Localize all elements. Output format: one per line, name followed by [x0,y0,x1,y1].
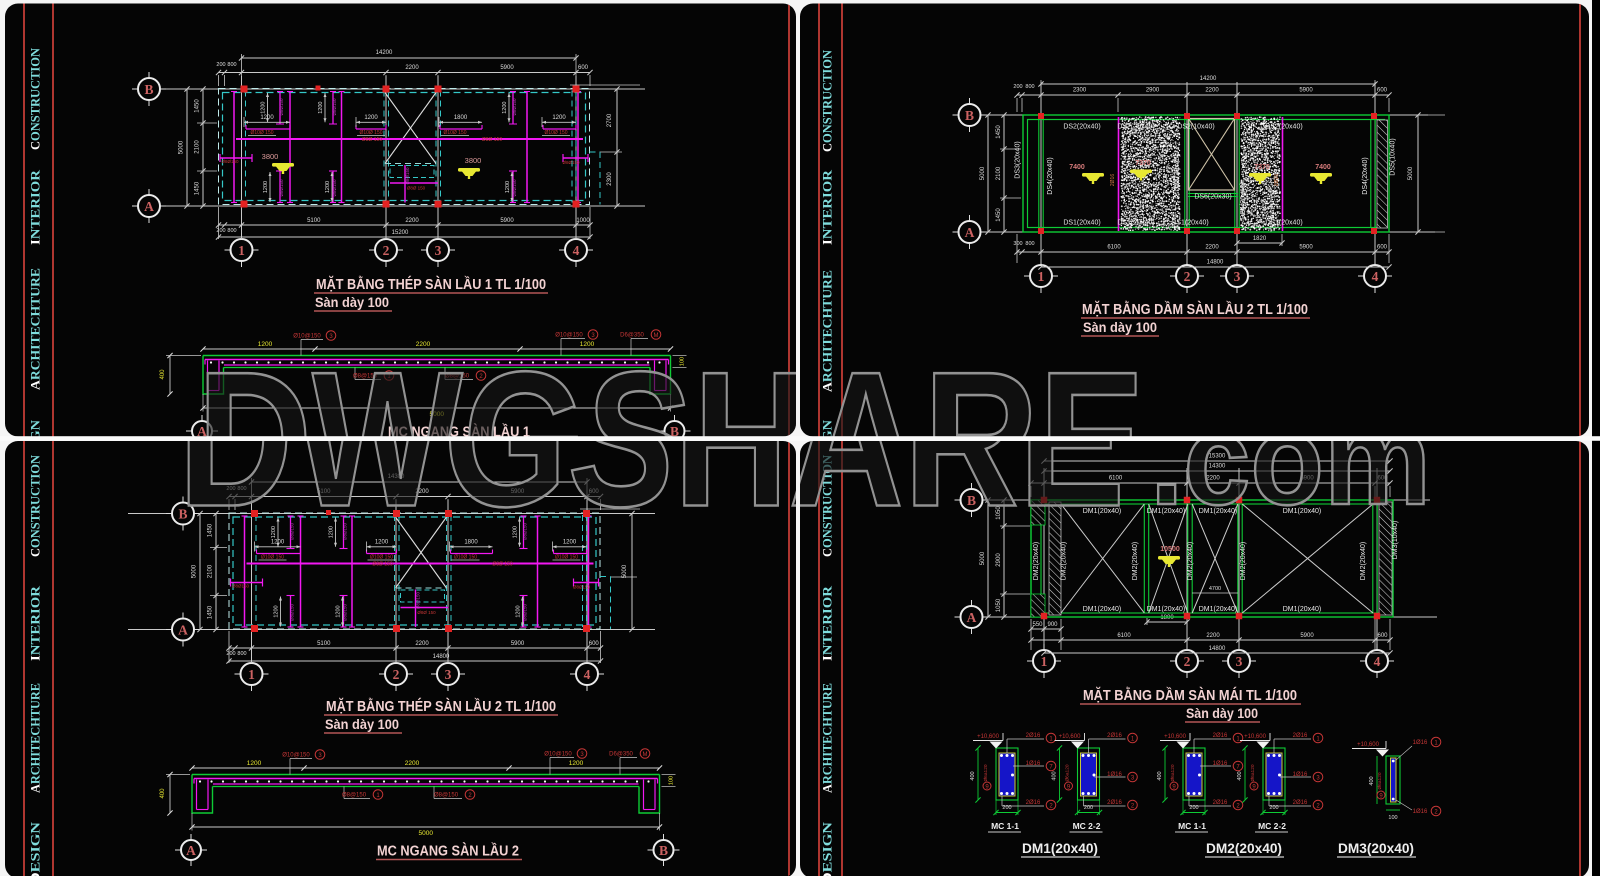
svg-text:Ø8Ø150: Ø8Ø150 [343,603,348,621]
svg-text:DM2(20x40): DM2(20x40) [1033,542,1040,581]
svg-text:MẶT BẰNG THÉP SÀN LẦU 1 TL 1/1: MẶT BẰNG THÉP SÀN LẦU 1 TL 1/100 [316,275,546,293]
svg-text:2300: 2300 [1073,88,1087,94]
svg-text:A: A [178,622,188,637]
svg-text:MC 2-2: MC 2-2 [1258,821,1286,831]
svg-text:3: 3 [1234,269,1241,284]
svg-text:DM2(20x40): DM2(20x40) [1132,542,1139,581]
svg-text:Ø10Ø 150: Ø10Ø 150 [359,130,382,136]
svg-text:2Ø16: 2Ø16 [1110,174,1116,186]
svg-text:Ø8Ø150: Ø8Ø150 [221,159,239,164]
svg-text:Ø8Ø150: Ø8Ø150 [512,98,517,116]
svg-text:1Ø16: 1Ø16 [1026,761,1041,767]
svg-text:4: 4 [573,243,580,258]
svg-text:400: 400 [1237,771,1243,780]
svg-text:1: 1 [1038,269,1045,284]
svg-text:INTERIOR: INTERIOR [821,585,835,661]
svg-text:B: B [659,843,668,858]
svg-text:DM2(20x40): DM2(20x40) [1240,542,1247,581]
svg-text:2Ø16: 2Ø16 [1026,733,1041,739]
svg-text:2900: 2900 [1146,88,1160,94]
svg-text:600: 600 [1377,633,1388,639]
svg-text:2200: 2200 [1206,633,1220,639]
svg-text:200: 200 [226,651,235,657]
svg-text:Ø10Ø 150: Ø10Ø 150 [555,555,578,561]
svg-text:1200: 1200 [261,102,267,114]
svg-text:DS1(20x40): DS1(20x40) [1063,220,1100,227]
svg-text:400: 400 [160,788,166,799]
svg-text:CONSTRUCTION: CONSTRUCTION [29,455,43,557]
svg-text:1800: 1800 [454,115,468,121]
svg-text:5900: 5900 [511,641,525,647]
svg-text:5900: 5900 [500,65,514,71]
svg-text:DM1(20x40): DM1(20x40) [1199,606,1238,613]
svg-text:DS6(20x30): DS6(20x30) [1194,194,1231,201]
svg-text:Ø8Ø 150: Ø8Ø 150 [372,562,393,568]
svg-text:ARCHITECHTURE: ARCHITECHTURE [29,683,43,793]
svg-text:10500: 10500 [1160,546,1180,553]
svg-text:100: 100 [669,776,675,785]
svg-text:7400: 7400 [1069,164,1085,171]
svg-text:A: A [144,199,154,214]
svg-text:Ø8Ø150: Ø8Ø150 [512,179,517,197]
svg-text:2100: 2100 [208,564,214,578]
svg-text:1200: 1200 [247,760,262,767]
svg-text:3: 3 [445,667,452,682]
svg-text:600: 600 [578,65,589,71]
svg-text:2Ø16: 2Ø16 [1213,733,1228,739]
svg-text:1200: 1200 [364,115,378,121]
svg-text:DS4(20x40): DS4(20x40) [1240,182,1247,219]
svg-text:14800: 14800 [1207,260,1224,266]
svg-text:Sàn dày 100: Sàn dày 100 [315,295,389,310]
svg-text:Ø10Ø 150: Ø10Ø 150 [261,555,284,561]
svg-text:200: 200 [216,228,225,234]
svg-text:200: 200 [1013,84,1022,90]
svg-text:Sàn dày 100: Sàn dày 100 [1186,706,1258,721]
svg-text:DESIGN: DESIGN [821,822,835,876]
svg-text:B: B [144,82,153,97]
svg-text:2: 2 [383,243,390,258]
svg-text:+10,600: +10,600 [1244,734,1267,740]
svg-text:INTERIOR: INTERIOR [29,585,43,661]
svg-text:2Ø16: 2Ø16 [1274,174,1280,186]
svg-text:300: 300 [1013,241,1022,247]
svg-text:Ø8Ø150: Ø8Ø150 [562,160,580,165]
svg-text:Ø8@150: Ø8@150 [434,793,459,799]
svg-text:Ø8Ø150: Ø8Ø150 [416,591,421,609]
svg-text:Ø8Ø150: Ø8Ø150 [332,179,337,197]
svg-text:6100: 6100 [1107,245,1121,251]
svg-text:Ø8Ø150: Ø8Ø150 [573,585,591,590]
svg-text:400: 400 [1369,776,1375,785]
svg-text:DS3(20x40): DS3(20x40) [1015,141,1022,178]
svg-text:7370: 7370 [1135,160,1151,167]
svg-text:Ø10Ø 150: Ø10Ø 150 [443,130,466,136]
svg-text:1450: 1450 [208,605,214,619]
svg-text:2200: 2200 [405,218,419,224]
svg-text:DM2(20x40): DM2(20x40) [1206,841,1282,856]
svg-text:MC 1-1: MC 1-1 [991,821,1019,831]
svg-text:2Ø16: 2Ø16 [1213,800,1228,806]
svg-text:INTERIOR: INTERIOR [821,169,835,245]
svg-text:3800: 3800 [262,152,279,161]
svg-text:Ø10@150: Ø10@150 [544,752,572,758]
svg-text:Ø8Ø 150: Ø8Ø 150 [417,610,436,615]
svg-text:DS2(20x40): DS2(20x40) [1265,124,1302,131]
svg-text:Ø8Ø150: Ø8Ø150 [405,167,410,185]
svg-text:2100: 2100 [996,166,1002,180]
svg-text:5000: 5000 [419,830,434,837]
svg-text:Ø8Ø150: Ø8Ø150 [232,584,250,589]
svg-text:1Ø16: 1Ø16 [1413,740,1428,746]
svg-text:400: 400 [160,369,166,380]
svg-text:DM2(20x40): DM2(20x40) [1061,542,1068,581]
svg-text:Ø8Ø150: Ø8Ø150 [279,179,284,197]
svg-text:600: 600 [589,641,600,647]
svg-text:5000: 5000 [980,551,986,565]
svg-text:B: B [965,108,974,123]
svg-text:Ø8Ø150: Ø8Ø150 [332,98,337,116]
svg-text:7400: 7400 [1315,164,1331,171]
svg-text:2900: 2900 [996,553,1002,567]
svg-text:DM2(20x40): DM2(20x40) [1360,542,1367,581]
svg-text:400: 400 [970,771,976,780]
svg-text:DS2(20x40): DS2(20x40) [1117,124,1154,131]
svg-text:+10,600: +10,600 [1059,734,1082,740]
svg-text:Sàn dày 100: Sàn dày 100 [325,717,399,732]
svg-text:2200: 2200 [1205,245,1219,251]
svg-text:+10,600: +10,600 [977,734,1000,740]
svg-text:400: 400 [1052,771,1058,780]
svg-text:1200: 1200 [552,115,566,121]
svg-text:2: 2 [1184,269,1191,284]
svg-text:1200: 1200 [325,181,331,193]
svg-text:2300: 2300 [607,172,613,186]
svg-text:Ø6a120: Ø6a120 [1250,764,1256,781]
svg-text:Ø10@150: Ø10@150 [282,753,310,759]
svg-text:1450: 1450 [195,99,201,113]
svg-text:1Ø16: 1Ø16 [1293,772,1308,778]
svg-text:M: M [643,752,648,758]
svg-text:MẶT BẰNG DẦM SÀN MÁI TL 1/100: MẶT BẰNG DẦM SÀN MÁI TL 1/100 [1083,686,1297,704]
svg-text:5900: 5900 [1299,88,1313,94]
svg-text:DM1(20x40): DM1(20x40) [1022,841,1098,856]
svg-text:Ø8Ø150: Ø8Ø150 [279,98,284,116]
svg-text:1: 1 [248,667,255,682]
svg-text:1200: 1200 [274,605,280,617]
svg-text:1450: 1450 [195,181,201,195]
svg-text:DS5(10x40): DS5(10x40) [1390,138,1397,175]
svg-text:2Ø16: 2Ø16 [1293,733,1308,739]
svg-text:+10,600: +10,600 [1164,734,1187,740]
svg-text:MC 1-1: MC 1-1 [1178,821,1206,831]
svg-text:5000: 5000 [179,140,185,154]
svg-text:4: 4 [584,667,591,682]
svg-text:DS2(20x40): DS2(20x40) [1063,124,1100,131]
svg-text:1200: 1200 [502,102,508,114]
svg-text:1050: 1050 [996,598,1002,612]
svg-text:600: 600 [1377,88,1388,94]
svg-text:600: 600 [1377,245,1388,251]
svg-text:200: 200 [216,62,225,68]
svg-text:1450: 1450 [996,208,1002,222]
svg-text:DM3(20x40): DM3(20x40) [1338,841,1414,856]
svg-text:CONSTRUCTION: CONSTRUCTION [821,50,835,152]
svg-text:Ø8Ø150: Ø8Ø150 [290,603,295,621]
svg-text:1820: 1820 [1253,236,1267,242]
svg-text:1750: 1750 [1262,199,1268,211]
svg-text:900: 900 [1047,622,1058,628]
svg-text:Ø10Ø 150: Ø10Ø 150 [544,130,567,136]
svg-text:5000: 5000 [622,564,628,578]
svg-text:800: 800 [1025,241,1034,247]
svg-text:DS4(20x40): DS4(20x40) [1047,157,1054,194]
svg-text:Ø8@150: Ø8@150 [342,793,367,799]
svg-text:15200: 15200 [392,230,409,236]
svg-text:A: A [965,225,975,240]
svg-text:DS1(20x40): DS1(20x40) [1117,220,1154,227]
svg-text:2200: 2200 [405,760,420,767]
svg-text:DS1(20x40): DS1(20x40) [1171,220,1208,227]
svg-text:DS4(20x40): DS4(20x40) [1174,154,1181,191]
svg-text:MẶT BẰNG DẦM SÀN LẦU 2 TL 1/10: MẶT BẰNG DẦM SÀN LẦU 2 TL 1/100 [1082,300,1308,318]
svg-text:550: 550 [1032,622,1043,628]
svg-text:7370: 7370 [1254,164,1270,171]
svg-text:2Ø16: 2Ø16 [1026,800,1041,806]
svg-text:14200: 14200 [1200,76,1217,82]
svg-text:1200: 1200 [569,760,584,767]
svg-text:5000: 5000 [1408,166,1414,180]
svg-text:DM1(20x40): DM1(20x40) [1083,606,1122,613]
svg-text:4: 4 [1374,654,1381,669]
svg-text:14800: 14800 [433,654,450,660]
svg-text:1450: 1450 [996,125,1002,139]
svg-text:2100: 2100 [195,140,201,154]
svg-text:Ø8Ø 150: Ø8Ø 150 [407,186,426,191]
svg-text:1200: 1200 [516,605,522,617]
svg-text:A: A [967,610,977,625]
svg-text:5100: 5100 [317,641,331,647]
svg-text:1200: 1200 [336,605,342,617]
svg-text:5000: 5000 [192,564,198,578]
svg-text:1000: 1000 [576,218,590,224]
svg-text:800: 800 [227,62,236,68]
svg-text:Ø8Ø 150: Ø8Ø 150 [482,137,503,143]
svg-text:3: 3 [1236,654,1243,669]
svg-text:2Ø16: 2Ø16 [1107,800,1122,806]
svg-text:5900: 5900 [1300,633,1314,639]
svg-text:2200: 2200 [405,65,419,71]
svg-text:Ø8Ø150: Ø8Ø150 [523,603,528,621]
svg-text:5900: 5900 [1299,245,1313,251]
svg-text:Ø6a120: Ø6a120 [1065,764,1071,781]
svg-text:MẶT BẰNG THÉP SÀN LẦU 2 TL 1/1: MẶT BẰNG THÉP SÀN LẦU 2 TL 1/100 [326,697,556,715]
svg-text:2200: 2200 [1205,88,1219,94]
svg-text:6100: 6100 [1117,633,1131,639]
svg-text:4700: 4700 [1209,586,1221,592]
svg-text:800: 800 [227,228,236,234]
svg-text:ARCHITECHTURE: ARCHITECHTURE [29,268,43,390]
svg-text:MC NGANG SÀN LẦU 2: MC NGANG SÀN LẦU 2 [377,843,519,860]
svg-text:Ø10Ø 150: Ø10Ø 150 [454,555,477,561]
svg-text:CONSTRUCTION: CONSTRUCTION [29,48,43,150]
svg-text:2Ø16: 2Ø16 [1107,733,1122,739]
svg-text:Ø6a120: Ø6a120 [1377,772,1383,789]
svg-text:5900: 5900 [500,218,514,224]
svg-text:2Ø16: 2Ø16 [1293,800,1308,806]
svg-text:14800: 14800 [1209,646,1226,652]
svg-text:5100: 5100 [307,218,321,224]
svg-text:5000: 5000 [980,166,986,180]
svg-text:800: 800 [1025,84,1034,90]
svg-text:INTERIOR: INTERIOR [29,169,43,245]
svg-text:800: 800 [237,651,246,657]
svg-text:Ø8Ø 150: Ø8Ø 150 [362,137,383,143]
svg-text:DM2(20x40): DM2(20x40) [1187,542,1194,581]
svg-text:1: 1 [238,243,245,258]
svg-text:1800: 1800 [1160,615,1174,621]
svg-text:1200: 1200 [318,102,324,114]
svg-text:2700: 2700 [607,113,613,127]
svg-text:Ø8Ø 150: Ø8Ø 150 [492,562,513,568]
svg-text:+10,600: +10,600 [1357,742,1380,748]
svg-text:DM1(20x40): DM1(20x40) [1283,606,1322,613]
svg-text:A: A [186,843,196,858]
svg-text:Ø6a120: Ø6a120 [1170,764,1176,781]
svg-text:DS4(20x40): DS4(20x40) [1362,157,1369,194]
svg-text:DM1(20x40): DM1(20x40) [1147,606,1186,613]
svg-text:3800: 3800 [465,156,482,165]
svg-text:2200: 2200 [415,641,429,647]
svg-text:1Ø16: 1Ø16 [1107,772,1122,778]
svg-text:1200: 1200 [263,181,269,193]
svg-text:1200: 1200 [505,181,511,193]
svg-text:D6@350: D6@350 [609,752,633,758]
svg-text:3: 3 [435,243,442,258]
svg-text:1Ø16: 1Ø16 [1413,809,1428,815]
svg-text:14200: 14200 [376,50,393,56]
svg-text:Ø6a120: Ø6a120 [983,764,989,781]
svg-text:ARCHITECHTURE: ARCHITECHTURE [821,683,835,793]
svg-text:2: 2 [393,667,400,682]
svg-text:1Ø16: 1Ø16 [1213,761,1228,767]
svg-text:4: 4 [1372,269,1379,284]
svg-text:DESIGN: DESIGN [29,822,43,876]
svg-text:400: 400 [1157,771,1163,780]
svg-text:Ø10Ø 150: Ø10Ø 150 [250,130,273,136]
svg-text:Ø10Ø 150: Ø10Ø 150 [370,555,393,561]
svg-text:100: 100 [1388,815,1397,821]
svg-text:MC 2-2: MC 2-2 [1073,821,1101,831]
svg-text:1: 1 [1041,654,1048,669]
svg-text:2: 2 [1184,654,1191,669]
svg-text:DS2(10x40): DS2(10x40) [1177,124,1214,131]
